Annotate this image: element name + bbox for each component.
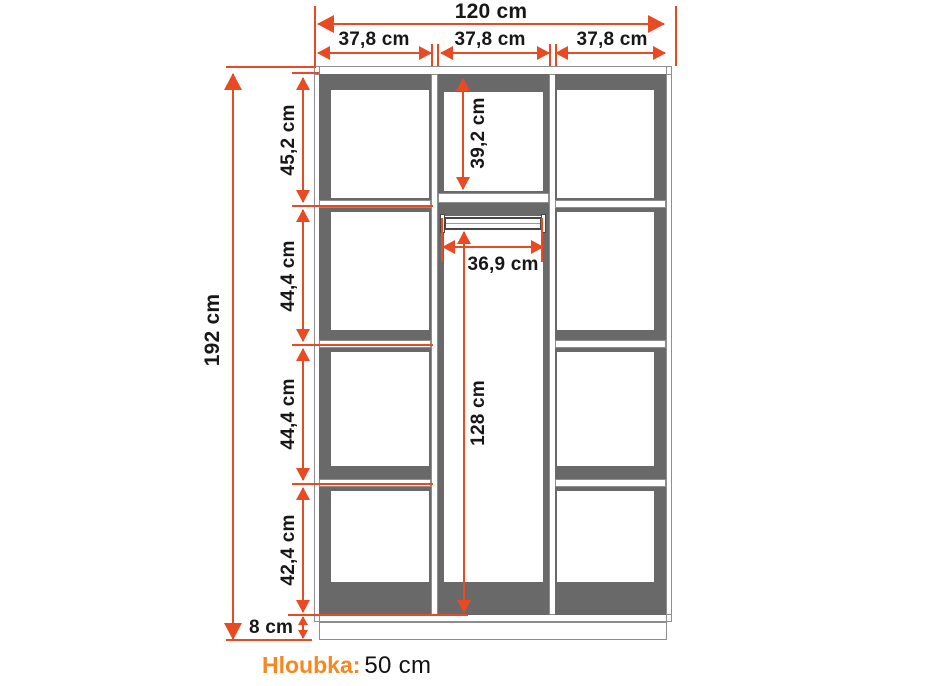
- dim-arrow-rod-width: [443, 246, 543, 248]
- dim-label-section-1: 45,2 cm: [278, 104, 300, 175]
- wardrobe-dimension-diagram: 120 cm 37,8 cm 37,8 cm 37,8 cm 192 cm 45…: [0, 0, 928, 686]
- dim-label-middle-bottom: 128 cm: [468, 380, 490, 446]
- dim-ext-total-width-left: [314, 6, 316, 66]
- dim-label-column-3: 37,8 cm: [576, 29, 647, 51]
- dim-label-total-height: 192 cm: [201, 294, 225, 366]
- right-wall-line: [666, 66, 667, 622]
- compartment-left-4: [319, 487, 431, 615]
- dim-label-section-3: 44,4 cm: [278, 378, 300, 449]
- dim-arrow-section-2: [302, 210, 304, 341]
- dim-label-section-4: 42,4 cm: [278, 514, 300, 585]
- dim-label-section-2: 44,4 cm: [278, 240, 300, 311]
- shelf-middle: [438, 193, 549, 203]
- compartment-right-4: [555, 487, 666, 615]
- compartment-right-2: [555, 208, 666, 340]
- dim-arrow-middle-bottom: [463, 232, 465, 612]
- dim-ext-total-width-right: [675, 6, 677, 66]
- dim-ext-shelf-2: [292, 344, 433, 346]
- dim-label-middle-top: 39,2 cm: [468, 97, 490, 168]
- compartment-right-3: [555, 348, 666, 479]
- hanging-rod: [444, 217, 542, 230]
- compartment-left-2: [319, 208, 431, 340]
- dim-arrow-section-1: [302, 78, 304, 202]
- dim-label-rod-width: 36,9 cm: [467, 254, 538, 276]
- dim-arrow-section-3: [302, 349, 304, 480]
- depth-note: Hloubka: 50 cm: [262, 652, 431, 680]
- dim-arrow-column-2: [441, 52, 549, 54]
- plinth: [319, 622, 667, 640]
- compartment-left-3: [319, 348, 431, 479]
- shelf-right-3: [555, 479, 666, 487]
- dim-arrow-column-1: [318, 52, 431, 54]
- dim-arrow-column-3: [556, 52, 665, 54]
- dim-ext-section-top: [292, 72, 319, 74]
- depth-label: Hloubka:: [262, 652, 360, 679]
- dim-label-column-1: 37,8 cm: [338, 29, 409, 51]
- dim-arrow-middle-top: [462, 79, 464, 189]
- depth-value: 50 cm: [364, 652, 431, 680]
- dim-label-column-2: 37,8 cm: [454, 29, 525, 51]
- dim-ext-partition1-b: [437, 44, 439, 66]
- dim-ext-shelf-1: [292, 205, 433, 207]
- dim-arrow-section-4: [302, 488, 304, 612]
- dim-label-plinth: 8 cm: [249, 617, 293, 639]
- compartment-right-1: [555, 74, 666, 200]
- compartment-middle-top: [438, 74, 549, 193]
- dim-arrow-plinth: [302, 617, 304, 638]
- shelf-right-1: [555, 200, 666, 208]
- shelf-right-2: [555, 340, 666, 348]
- dim-arrow-total-height: [232, 74, 234, 639]
- dim-ext-top: [226, 66, 316, 68]
- dim-label-total-width: 120 cm: [455, 0, 527, 24]
- dim-ext-floor: [288, 614, 468, 616]
- compartment-left-1: [319, 74, 431, 200]
- dim-ext-shelf-3: [292, 483, 433, 485]
